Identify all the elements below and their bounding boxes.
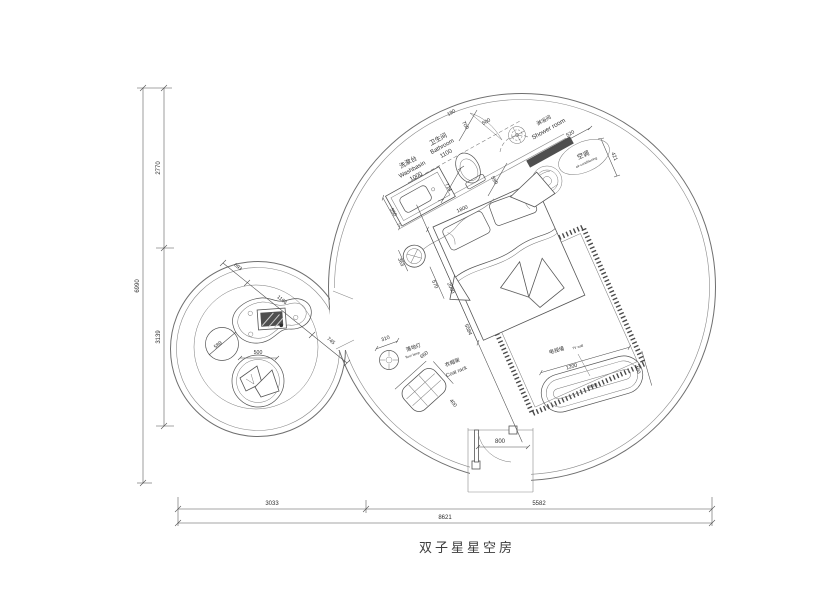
round-chair: 500 — [232, 350, 284, 407]
bedside-stool — [400, 242, 429, 271]
door-swing-arc — [478, 433, 511, 462]
floor-lamp: 310 落地灯 floor lamp — [375, 335, 422, 370]
dim-width-right: 5582 — [532, 501, 546, 507]
dim-overall-width: 8621 — [438, 515, 452, 521]
dims-bottom: 3033 5582 8621 — [175, 497, 715, 526]
shower-label: 淋浴间 Shower room — [525, 108, 566, 142]
dim-590: 590 — [489, 175, 498, 186]
dim-coat-660: 660 — [419, 350, 430, 360]
dim-pouf-589: 589 — [213, 340, 224, 350]
dim-door-800: 800 — [495, 439, 506, 445]
dim-wall-190: 190 — [446, 108, 457, 117]
dim-chair-500: 500 — [254, 350, 263, 356]
bathroom-door: 500 700 190 — [446, 108, 502, 141]
laptop — [257, 308, 286, 330]
dim-coat-400: 400 — [448, 398, 458, 409]
desk — [227, 283, 316, 349]
door-leaf — [475, 430, 479, 462]
secondary-room-walls — [171, 262, 346, 437]
floor-plan-drawing: 800 550 洗漱台 Washbasin 1000 714 590 卫生间 — [0, 0, 837, 592]
dim-desk-1166: 1166 — [275, 294, 288, 306]
tv-wall-label-cn: 电视墙 — [548, 344, 565, 356]
dim-diag-5584: 5584 — [463, 323, 473, 336]
dims-left: 6990 2770 3139 — [135, 85, 174, 486]
dim-overall-height: 6990 — [135, 279, 141, 293]
floor-plan-canvas: 800 550 洗漱台 Washbasin 1000 714 590 卫生间 — [0, 0, 837, 592]
entrance-vestibule: 800 — [468, 426, 533, 492]
dim-lamp-310: 310 — [381, 335, 391, 344]
dim-height-bottom: 3139 — [156, 330, 162, 344]
dim-height-top: 2770 — [156, 161, 162, 175]
pouf: 589 — [206, 328, 239, 361]
tv-wall-label-en: TV wall — [572, 344, 584, 351]
shower-drain-icon — [505, 123, 528, 146]
coat-rack: 660 衣帽架 Coat rack 400 — [395, 350, 468, 415]
coat-label-cn: 衣帽架 — [444, 356, 461, 369]
drawing-title: 双子星星空房 — [419, 540, 515, 556]
dim-door-700: 700 — [460, 120, 469, 131]
bathroom-label: 卫生间 Bathroom 1100 — [424, 129, 459, 163]
dim-stool-570: 570 — [430, 279, 439, 289]
dim-ac-421: 421 — [609, 151, 618, 161]
dim-width-left: 3033 — [265, 501, 279, 507]
dim-ac-520: 520 — [565, 129, 576, 138]
lamp-label-cn: 落地灯 — [405, 341, 422, 354]
